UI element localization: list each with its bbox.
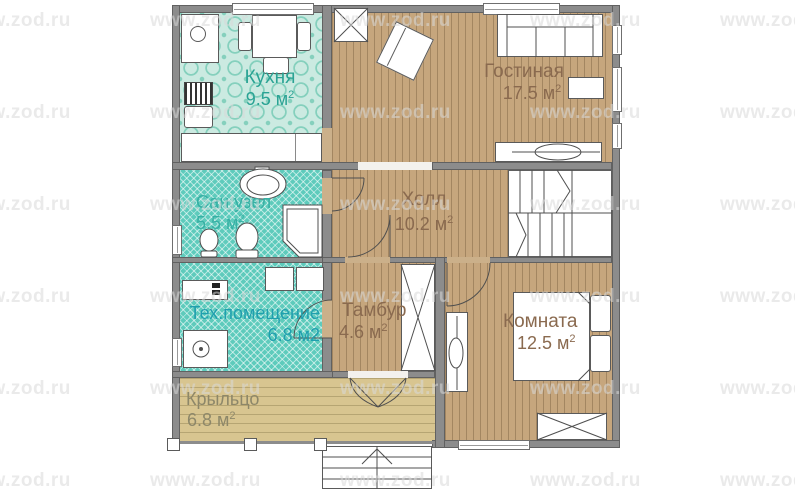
hall-area: 10.2 м2 [395,215,454,234]
tech-window [172,338,182,367]
watermark-text: www.zod.ru [340,378,451,400]
watermark-text: www.zod.ru [720,378,795,400]
watermark-text: www.zod.ru [720,10,795,32]
wall-tech-bottom [172,371,335,378]
tech-door-opening [322,300,332,338]
watermark-text: www.zod.ru [150,194,261,216]
bathroom-window [172,225,182,255]
watermark-text: www.zod.ru [530,286,641,308]
bedroom-area: 12.5 м2 [517,334,576,353]
living-area: 17.5 м2 [503,84,562,103]
watermark-text: www.zod.ru [530,194,641,216]
watermark-text: www.zod.ru [720,286,795,308]
porch-post-1 [167,438,180,451]
watermark-text: www.zod.ru [0,286,71,308]
living-label: Гостиная [484,62,564,82]
kitchen-door-opening [322,128,332,162]
boiler [183,330,228,368]
pillow-2 [590,335,611,372]
watermark-text: www.zod.ru [530,470,641,492]
tambour-area: 4.6 м2 [339,323,388,342]
tv-stand [495,142,602,162]
bedroom-label: Комната [503,312,577,332]
bedroom-door-opening [447,257,490,263]
floor-plan: Кухня 9.5 м2 Гостиная 17.5 м2 Сан.узел 5… [0,0,795,496]
tambour-door-opening [345,257,390,263]
porch-area: 6.8 м2 [187,411,236,430]
watermark-text: www.zod.ru [0,194,71,216]
porch-door-opening [348,371,408,378]
watermark-text: www.zod.ru [150,378,261,400]
porch-post-3 [314,438,327,451]
watermark-text: www.zod.ru [720,102,795,124]
hall-passage-opening [358,162,432,170]
watermark-text: www.zod.ru [530,10,641,32]
bathroom-area: 5.5 м2 [196,214,245,233]
watermark-text: www.zod.ru [720,194,795,216]
watermark-text: www.zod.ru [150,102,261,124]
coffee-table [568,77,604,99]
bathroom-door-opening [322,178,332,214]
watermark-text: www.zod.ru [0,102,71,124]
watermark-text: www.zod.ru [0,378,71,400]
wall-bath-tech-divider [172,257,332,263]
watermark-text: www.zod.ru [150,286,261,308]
watermark-text: www.zod.ru [150,10,261,32]
wall-living-bottom [432,162,612,170]
watermark-text: www.zod.ru [340,286,451,308]
bedroom-wardrobe [537,413,607,440]
watermark-text: www.zod.ru [340,102,451,124]
watermark-text: www.zod.ru [340,470,451,492]
watermark-text: www.zod.ru [0,470,71,492]
tech-area: 6.8 м2 [268,326,320,345]
wall-kitchen-bottom [172,162,362,170]
chair-right [297,22,311,51]
watermark-text: www.zod.ru [340,10,451,32]
watermark-text: www.zod.ru [530,102,641,124]
watermark-text: www.zod.ru [0,10,71,32]
tech-cabinet-2 [296,267,324,291]
bedroom-window [458,440,530,450]
living-window-right-3 [612,123,622,149]
kitchen-label: Кухня [245,68,296,88]
watermark-text: www.zod.ru [530,378,641,400]
porch-edge [172,441,435,444]
watermark-text: www.zod.ru [720,470,795,492]
kitchen-counter-bottom [181,133,322,162]
porch-post-2 [244,438,257,451]
watermark-text: www.zod.ru [150,470,261,492]
watermark-text: www.zod.ru [340,194,451,216]
tech-cabinet-1 [265,267,294,291]
